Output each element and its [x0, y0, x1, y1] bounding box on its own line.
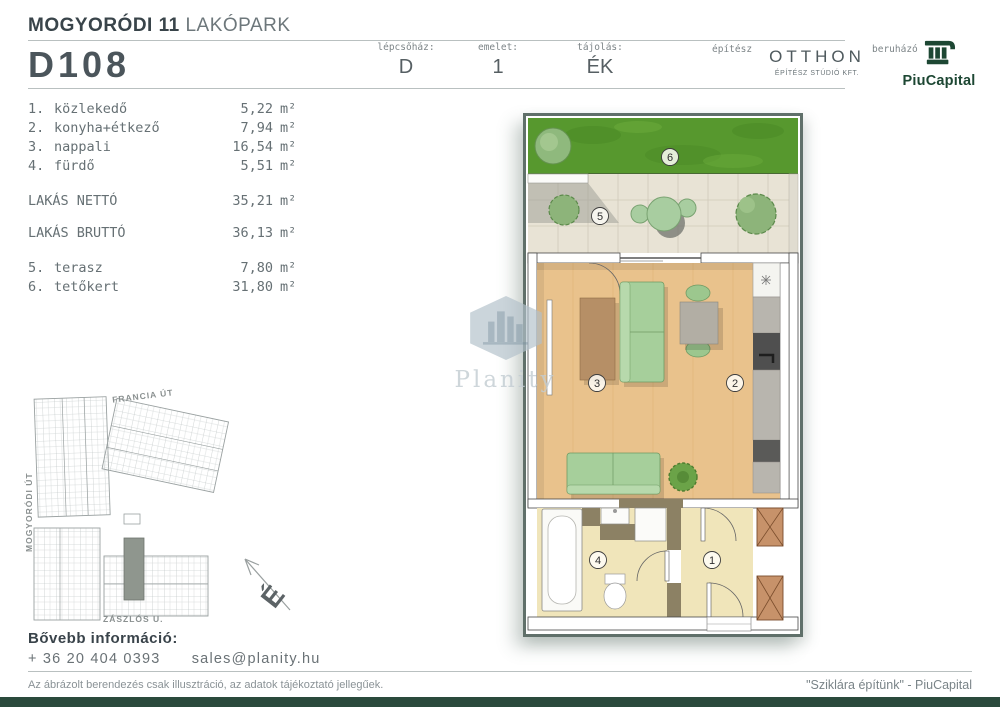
room-row: 3. nappali 16,54 m²: [28, 138, 300, 157]
total-unit: m²: [280, 192, 300, 211]
appliance: [753, 440, 780, 462]
contact-phone: + 36 20 404 0393: [28, 651, 161, 667]
room-num: 5.: [28, 259, 54, 278]
room-num: 1.: [28, 100, 54, 119]
room-row: 6. tetőkert 31,80 m²: [28, 278, 300, 297]
terrace-plant-left: [549, 195, 579, 225]
label-kitchen: 2: [727, 375, 744, 392]
contact-line: + 36 20 404 0393 sales@planity.hu: [28, 651, 321, 667]
room-area: 5,22: [240, 100, 273, 119]
terrace: [528, 174, 798, 253]
footer-green-bar: [0, 697, 1000, 707]
living-kitchen: [528, 253, 798, 507]
room-num: 6.: [28, 278, 54, 297]
field-staircase: lépcsőház: D: [360, 42, 452, 79]
room-num: 4.: [28, 157, 54, 176]
siteplan-courtyard: [124, 514, 140, 524]
room-area: 31,80: [232, 278, 273, 297]
room-list: 1. közlekedő 5,22 m² 2. konyha+étkező 7,…: [28, 100, 300, 297]
siteplan-building-sw: [34, 528, 100, 620]
room-row: 1. közlekedő 5,22 m²: [28, 100, 300, 119]
unit-id: D108: [28, 44, 130, 86]
planity-hexagon-icon: [467, 296, 545, 360]
siteplan-building-se: [104, 556, 208, 616]
siteplan-highlighted-unit: [124, 538, 144, 600]
label-hall: 1: [704, 552, 721, 569]
room-row: 2. konyha+étkező 7,94 m²: [28, 119, 300, 138]
room-num: 2.: [28, 119, 54, 138]
washbasin: [601, 508, 629, 524]
label-bath: 4: [590, 552, 607, 569]
bathtub: [542, 509, 582, 611]
room-num: 3.: [28, 138, 54, 157]
watermark: Planity: [443, 296, 568, 393]
washing-machine: [635, 508, 666, 541]
stove: [753, 333, 780, 370]
field-floor: emelet: 1: [455, 42, 541, 79]
dining-chair: [686, 285, 710, 301]
field-orientation-value: ÉK: [550, 56, 650, 79]
svg-text:6: 6: [667, 152, 673, 164]
room-name: közlekedő: [54, 100, 240, 119]
compass-north-letter: É: [255, 580, 291, 614]
field-staircase-label: lépcsőház:: [360, 42, 452, 53]
room-unit: m²: [280, 100, 300, 119]
street-label-left: MOGYORÓDI ÚT: [24, 472, 34, 552]
total-gross-row: LAKÁS BRUTTÓ 36,13 m²: [28, 224, 300, 243]
room-row: 4. fürdő 5,51 m²: [28, 157, 300, 176]
total-area: 36,13: [232, 224, 273, 243]
svg-text:2: 2: [732, 378, 738, 390]
contact-email: sales@planity.hu: [192, 651, 321, 667]
siteplan-building-nw: [34, 397, 110, 517]
label-garden: 6: [662, 149, 679, 166]
brochure-page: MOGYORÓDI 11 LAKÓPARK D108 lépcsőház: D …: [0, 0, 1000, 707]
label-terrace: 5: [592, 208, 609, 225]
header-bottom-rule: [28, 88, 845, 89]
label-living: 3: [589, 375, 606, 392]
kitchen-counter: [753, 263, 780, 493]
sofa-bottom: [567, 453, 660, 494]
toilet: [604, 574, 626, 609]
sofa-top: [620, 282, 664, 382]
field-orientation: tájolás: ÉK: [550, 42, 650, 79]
developer-logo: PiuCapital: [900, 38, 978, 89]
shaft-top: [757, 508, 783, 546]
room-area: 16,54: [232, 138, 273, 157]
architect-logo: OTTHON ÉPÍTÉSZ STÚDIÓ KFT.: [762, 47, 872, 77]
header-top-rule: [28, 40, 845, 41]
room-name: fürdő: [54, 157, 240, 176]
disclaimer: Az ábrázolt berendezés csak illusztráció…: [28, 679, 383, 691]
roof-garden: [528, 118, 798, 174]
total-name: LAKÁS BRUTTÓ: [28, 224, 232, 243]
room-name: tetőkert: [54, 278, 232, 297]
shaft-bottom: [757, 576, 783, 620]
piucapital-column-icon: [920, 38, 958, 68]
svg-text:3: 3: [594, 378, 600, 390]
room-unit: m²: [280, 259, 300, 278]
room-name: nappali: [54, 138, 232, 157]
architect-subtitle: ÉPÍTÉSZ STÚDIÓ KFT.: [762, 70, 872, 77]
project-title-light: LAKÓPARK: [185, 15, 290, 36]
total-net-row: LAKÁS NETTÓ 35,21 m²: [28, 192, 300, 211]
footer-rule: [28, 671, 972, 672]
dining-table: [680, 302, 718, 344]
room-area: 7,94: [240, 119, 273, 138]
terrace-table: [647, 197, 681, 231]
watermark-brand: Planity: [443, 367, 568, 393]
room-unit: m²: [280, 119, 300, 138]
north-compass: É: [232, 548, 304, 622]
room-unit: m²: [280, 278, 300, 297]
developer-name: PiuCapital: [900, 73, 978, 89]
project-title: MOGYORÓDI 11 LAKÓPARK: [28, 15, 291, 37]
terrace-chair: [631, 205, 649, 223]
field-staircase-value: D: [360, 56, 452, 79]
living-plant: [669, 463, 697, 491]
room-unit: m²: [280, 138, 300, 157]
architect-label: építész: [712, 44, 752, 55]
room-area: 7,80: [240, 259, 273, 278]
room-name: konyha+étkező: [54, 119, 240, 138]
total-area: 35,21: [232, 192, 273, 211]
site-plan: [20, 388, 255, 630]
field-floor-value: 1: [455, 56, 541, 79]
total-name: LAKÁS NETTÓ: [28, 192, 232, 211]
svg-text:1: 1: [709, 555, 715, 567]
room-row: 5. terasz 7,80 m²: [28, 259, 300, 278]
total-unit: m²: [280, 224, 300, 243]
room-area: 5,51: [240, 157, 273, 176]
architect-name: OTTHON: [762, 47, 872, 67]
field-orientation-label: tájolás:: [550, 42, 650, 53]
svg-text:4: 4: [595, 555, 601, 567]
room-name: terasz: [54, 259, 240, 278]
footer-slogan: "Sziklára építünk" - PiuCapital: [806, 678, 972, 692]
sideboard: [580, 298, 615, 380]
field-floor-label: emelet:: [455, 42, 541, 53]
room-unit: m²: [280, 157, 300, 176]
svg-text:5: 5: [597, 211, 603, 223]
project-title-bold: MOGYORÓDI 11: [28, 15, 180, 36]
siteplan-building-ne: [102, 398, 228, 492]
contact-heading: Bővebb információ:: [28, 630, 178, 647]
street-label-bottom: ZÁSZLÓS U.: [103, 614, 164, 624]
